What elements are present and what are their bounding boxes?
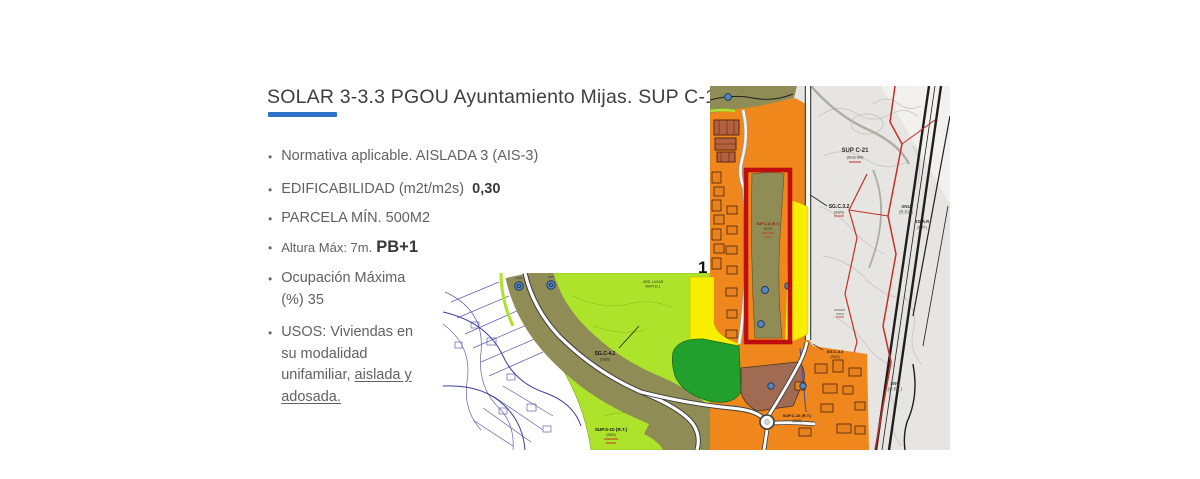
label-sg-c33: SG.C-3.3 [827,349,844,354]
label-sup-c10-strip: SUP C-10 (R.T.) [757,222,780,226]
bullet-ocupacion-text: Ocupación Máxima (%) 35 [281,268,405,311]
label-snu-bottom-sub: (R.P.L.) [888,387,902,392]
edificabilidad-label: EDIFICABILIDAD (m2t/m2s) [281,181,464,197]
map-marker-1: 1 [698,258,707,278]
bullet-dot: • [268,147,272,168]
label-sg-ar-sub: (R.P.) [917,226,927,230]
bullet-altura-text: Altura Máx: 7m. PB+1 [281,237,418,259]
label-sg-c42-sub: (SUS) [600,358,610,362]
slide: SOLAR 3-3.3 PGOU Ayuntamiento Mijas. SUP… [0,0,1200,479]
label-sup-s10-sub: (SUS) [606,433,615,437]
bullet-parcela: • PARCELA MÍN. 500M2 [268,208,458,229]
label-sup-c10-bottom-sub: (SUS) [792,419,801,423]
utility-symbol [758,321,765,328]
label-sup-s10: SUP.S-10 (R.T.) [595,427,628,432]
sup-c10-strip-zone [751,173,784,339]
zoning-map: SUP C-21 (SUS-SR) SG.C.3.2 (SUS) SNU (R.… [443,86,950,450]
label-sg-c32-sub: (SUS) [834,211,844,215]
label-sup-c21: SUP C-21 [842,148,870,154]
utility-symbol [725,94,732,101]
label-sg-c42: SG.C-4.2 [595,351,616,357]
bullet-dot: • [268,323,272,344]
label-snu-bottom: SNU [890,381,899,386]
olive-corridor-zone-lower [657,408,693,450]
usos-line2: su modalidad [281,344,413,366]
label-sg-c32: SG.C.3.2 [829,204,850,210]
building-complex [714,120,739,162]
altura-value: PB+1 [376,238,418,256]
label-urb-lagar-2: MARTELL [645,285,661,289]
bullet-list: • Normativa aplicable. AISLADA 3 (AIS-3)… [268,146,458,408]
bullet-dot: • [268,180,272,201]
bullet-edificabilidad: • EDIFICABILIDAD (m2t/m2s) 0,30 [268,179,458,200]
label-sup-c10-bottom: SUP.C-10 (R.T.) [783,413,812,418]
ocupacion-line1: Ocupación Máxima [281,268,405,290]
title-accent-bar [268,112,337,117]
utility-symbol [768,383,774,389]
usos-line1: USOS: Viviendas en [281,322,413,344]
bullet-normativa: • Normativa aplicable. AISLADA 3 (AIS-3) [268,146,458,167]
bullet-parcela-text: PARCELA MÍN. 500M2 [281,208,430,229]
bullet-ocupacion: • Ocupación Máxima (%) 35 [268,268,458,311]
label-snu-top: SNU [901,204,910,209]
usos-line4: adosada. [281,387,413,409]
utility-symbol [800,383,806,389]
bullet-altura: • Altura Máx: 7m. PB+1 [268,237,458,259]
label-sg-ar: SG.A.R [915,219,929,224]
bullet-dot: • [268,269,272,290]
altura-label: Altura Máx: 7m. [281,240,372,255]
bullet-dot: • [268,238,272,259]
label-sup-c10-strip-sub: (SUS) [764,227,772,231]
label-urb-lagar: URB. LAGAR [643,280,664,284]
label-snu-top-sub: (R.P.L.) [899,210,913,215]
ocupacion-line2: (%) 35 [281,290,405,312]
label-sg-c33-sub: (SUS) [830,355,839,359]
usos-line3: unifamiliar, aislada y [281,365,413,387]
utility-symbol [761,286,768,293]
usos-line3-underlined: aislada y [355,367,412,383]
bullet-usos-text: USOS: Viviendas en su modalidad unifamil… [281,322,413,408]
zoning-map-svg: SUP C-21 (SUS-SR) SG.C.3.2 (SUS) SNU (R.… [443,86,950,450]
lime-sliver-top [710,110,735,111]
usos-line3-normal: unifamiliar, [281,367,350,383]
bullet-dot: • [268,209,272,230]
bullet-usos: • USOS: Viviendas en su modalidad unifam… [268,322,458,408]
label-sup-c21-sub: (SUS-SR) [847,156,865,160]
